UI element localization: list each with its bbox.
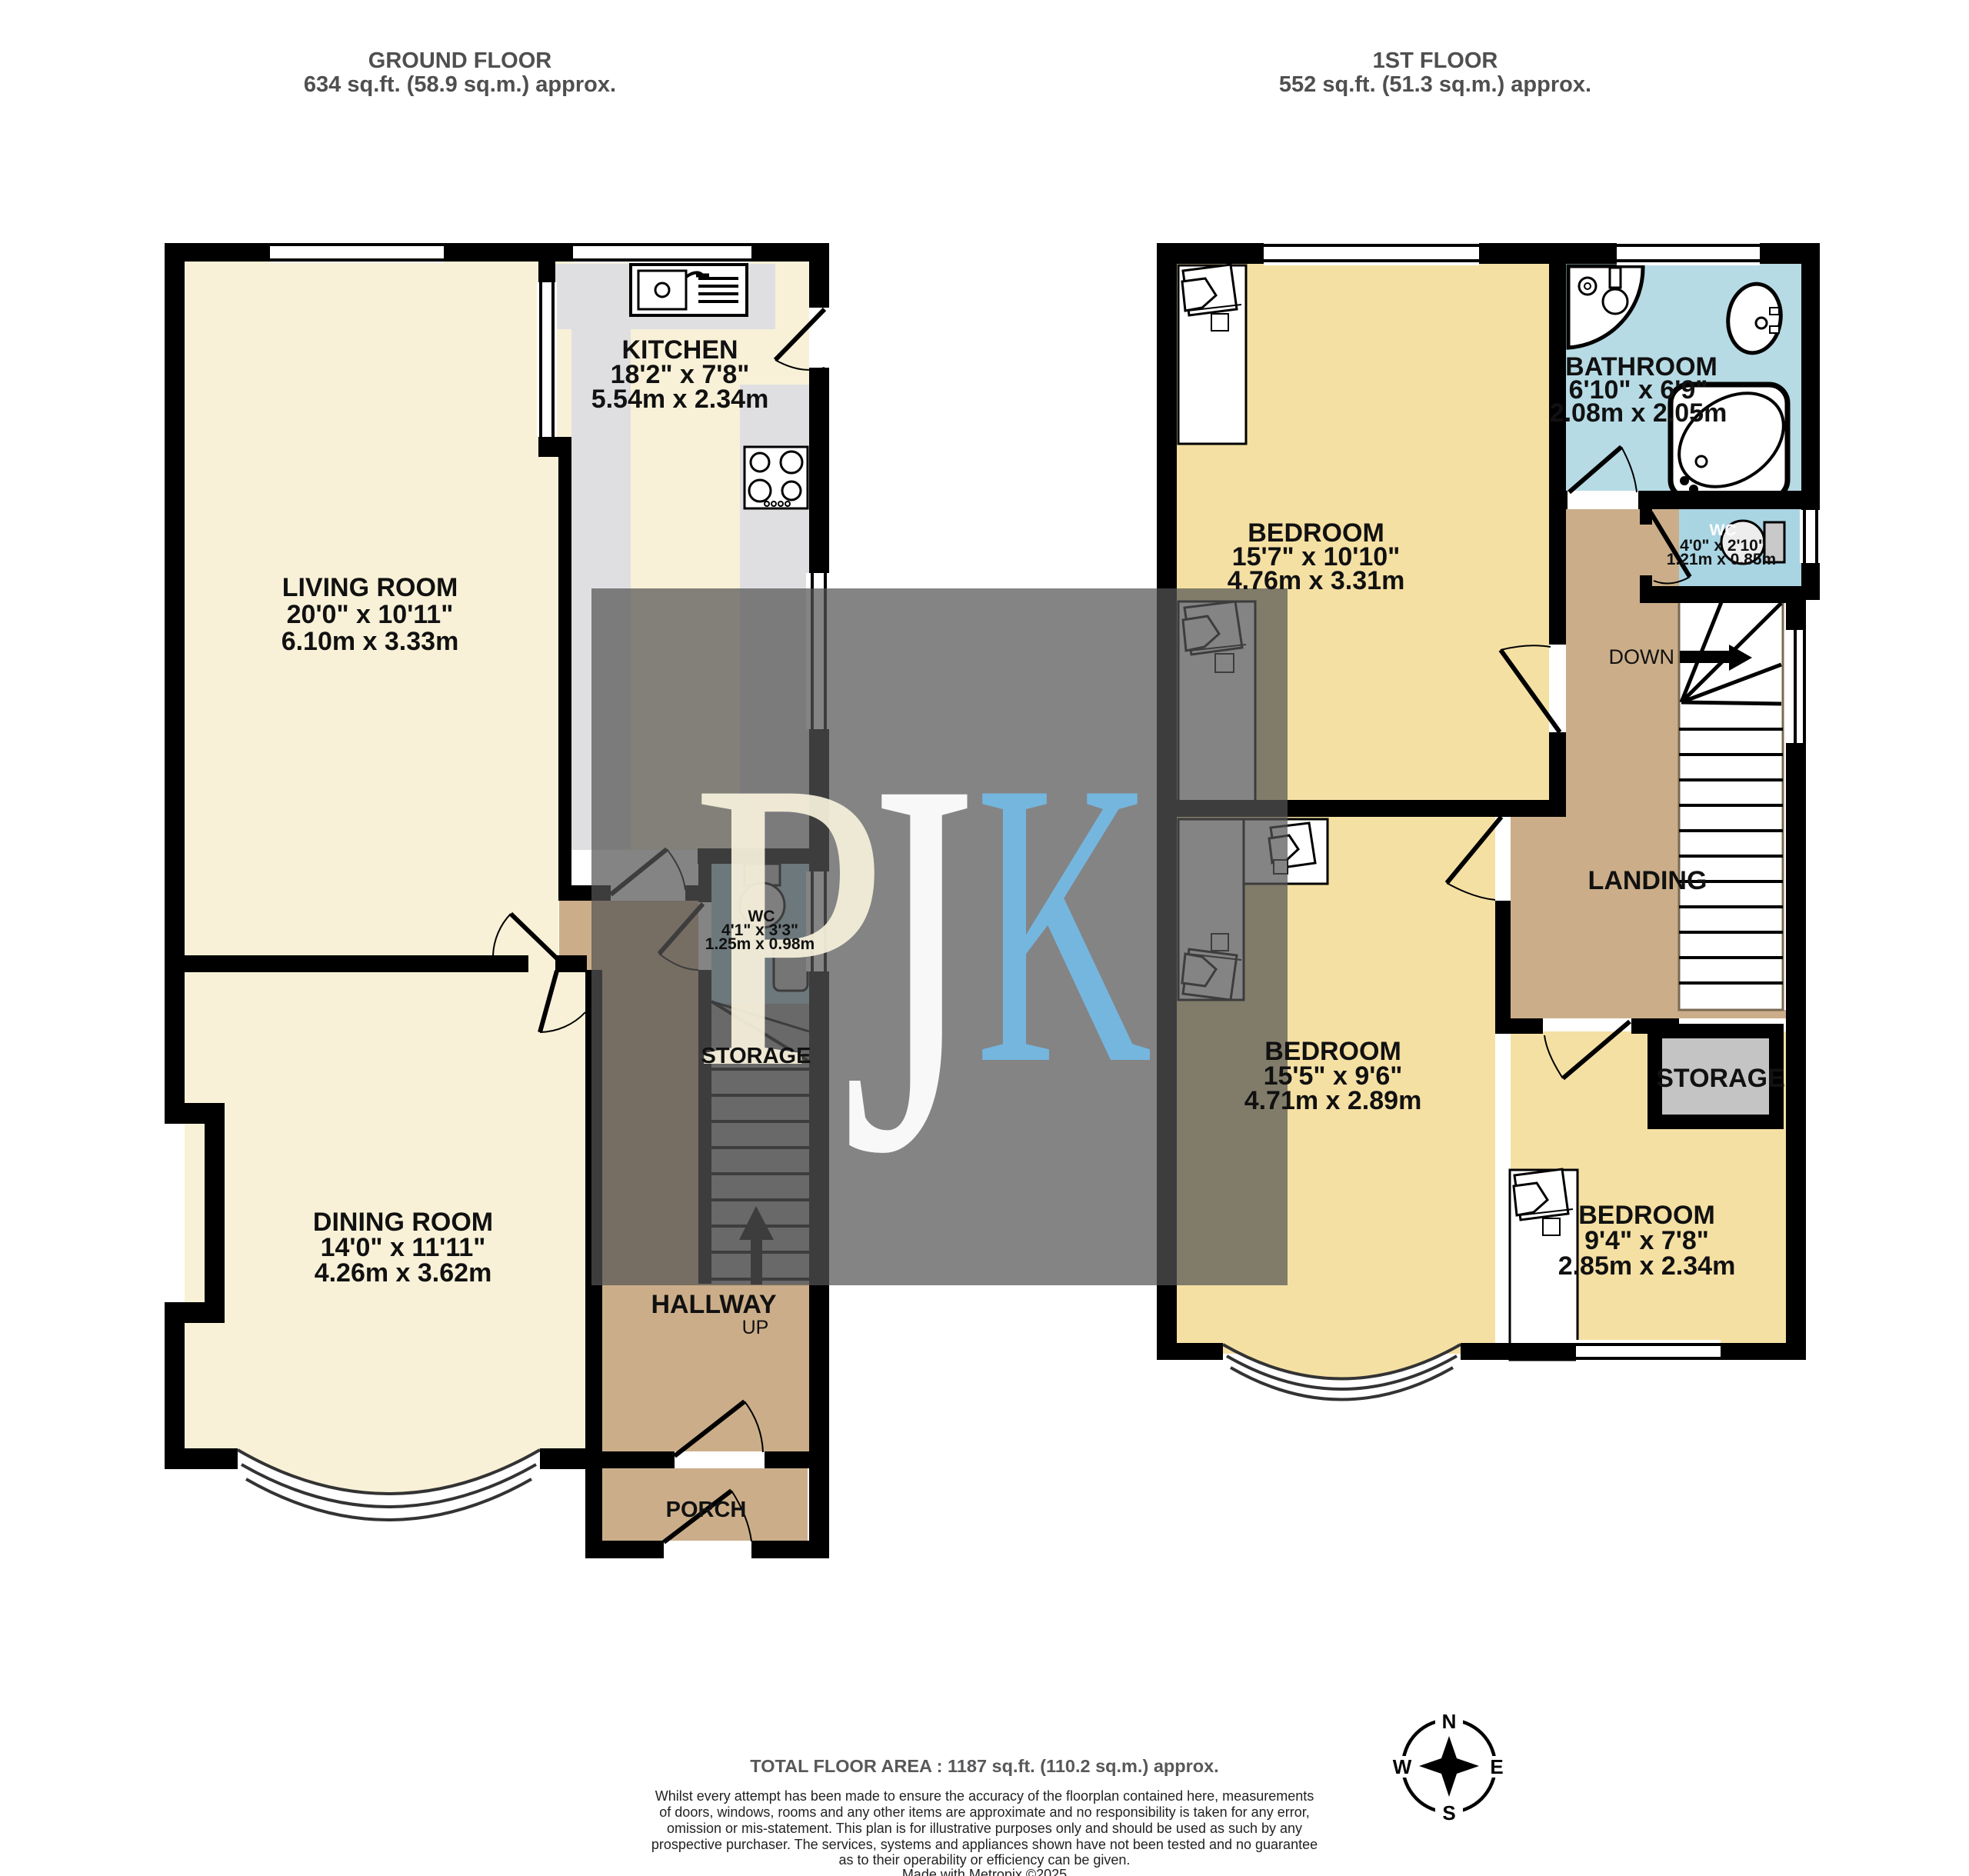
svg-text:Whilst every attempt has been: Whilst every attempt has been made to en…	[655, 1788, 1314, 1804]
svg-text:J: J	[842, 667, 975, 1265]
svg-text:prospective purchaser. The ser: prospective purchaser. The services, sys…	[651, 1837, 1318, 1852]
svg-text:GROUND FLOOR: GROUND FLOOR	[368, 48, 551, 73]
svg-text:2.08m x 2.05m: 2.08m x 2.05m	[1550, 398, 1727, 428]
svg-text:STORAGE: STORAGE	[1656, 1064, 1785, 1093]
svg-text:STORAGE: STORAGE	[701, 1044, 811, 1068]
svg-text:K: K	[975, 698, 1152, 1148]
svg-text:634 sq.ft. (58.9 sq.m.) approx: 634 sq.ft. (58.9 sq.m.) approx.	[304, 72, 616, 97]
svg-text:5.54m x 2.34m: 5.54m x 2.34m	[591, 385, 769, 414]
svg-text:E: E	[1490, 1755, 1503, 1778]
svg-text:4.71m x 2.89m: 4.71m x 2.89m	[1244, 1086, 1422, 1115]
svg-text:as to their operability or eff: as to their operability or efficiency ca…	[839, 1852, 1131, 1868]
svg-text:DOWN: DOWN	[1609, 645, 1674, 668]
svg-text:1.25m x 0.98m: 1.25m x 0.98m	[705, 935, 815, 953]
svg-text:UP: UP	[742, 1317, 769, 1338]
svg-text:N: N	[1442, 1710, 1457, 1733]
svg-text:4.76m x 3.31m: 4.76m x 3.31m	[1228, 566, 1405, 595]
svg-text:552 sq.ft. (51.3 sq.m.) approx: 552 sq.ft. (51.3 sq.m.) approx.	[1279, 72, 1591, 97]
svg-text:of doors, windows, rooms and a: of doors, windows, rooms and any other i…	[659, 1804, 1309, 1820]
svg-text:PORCH: PORCH	[666, 1498, 747, 1522]
svg-text:S: S	[1442, 1801, 1455, 1824]
svg-text:1.21m x 0.85m: 1.21m x 0.85m	[1667, 551, 1776, 568]
svg-text:omission or mis-statement. Thi: omission or mis-statement. This plan is …	[667, 1821, 1302, 1836]
svg-text:HALLWAY: HALLWAY	[651, 1290, 776, 1319]
svg-text:TOTAL FLOOR AREA : 1187 sq.ft.: TOTAL FLOOR AREA : 1187 sq.ft. (110.2 sq…	[750, 1756, 1218, 1776]
svg-text:4.26m x 3.62m: 4.26m x 3.62m	[315, 1258, 492, 1288]
svg-text:W: W	[1393, 1755, 1412, 1778]
svg-text:LANDING: LANDING	[1588, 866, 1707, 895]
svg-text:Made with Metropix ©2025: Made with Metropix ©2025	[902, 1867, 1067, 1876]
svg-text:LIVING ROOM: LIVING ROOM	[282, 573, 458, 602]
svg-text:1ST FLOOR: 1ST FLOOR	[1373, 48, 1498, 73]
svg-text:6.10m x 3.33m: 6.10m x 3.33m	[282, 627, 459, 656]
svg-text:20'0" x 10'11": 20'0" x 10'11"	[287, 600, 454, 629]
svg-text:2.85m x 2.34m: 2.85m x 2.34m	[1558, 1251, 1736, 1281]
